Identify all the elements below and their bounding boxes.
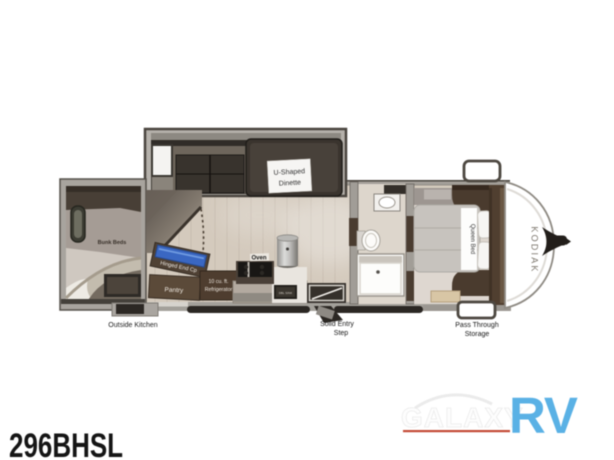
svg-text:Bunk Beds: Bunk Beds: [98, 240, 127, 246]
svg-text:Step: Step: [334, 330, 349, 337]
svg-text:Queen Bed: Queen Bed: [469, 224, 475, 254]
svg-text:Solid Entry: Solid Entry: [320, 321, 354, 328]
svg-text:Dinette: Dinette: [279, 179, 302, 187]
svg-text:296BHSL: 296BHSL: [9, 427, 123, 460]
svg-text:Pantry: Pantry: [164, 286, 184, 294]
svg-text:Refrigerator: Refrigerator: [205, 287, 233, 293]
svg-text:Outside Kitchen: Outside Kitchen: [108, 322, 158, 329]
svg-text:Oven: Oven: [251, 256, 266, 262]
svg-text:Storage: Storage: [465, 331, 490, 338]
svg-text:DBL SINK: DBL SINK: [279, 291, 293, 295]
svg-text:KODIAK: KODIAK: [530, 226, 540, 273]
svg-text:10 cu. ft.: 10 cu. ft.: [209, 279, 229, 285]
svg-text:GALAXY: GALAXY: [401, 402, 524, 433]
svg-text:RV: RV: [509, 387, 578, 444]
svg-text:Pass Through: Pass Through: [455, 322, 499, 329]
